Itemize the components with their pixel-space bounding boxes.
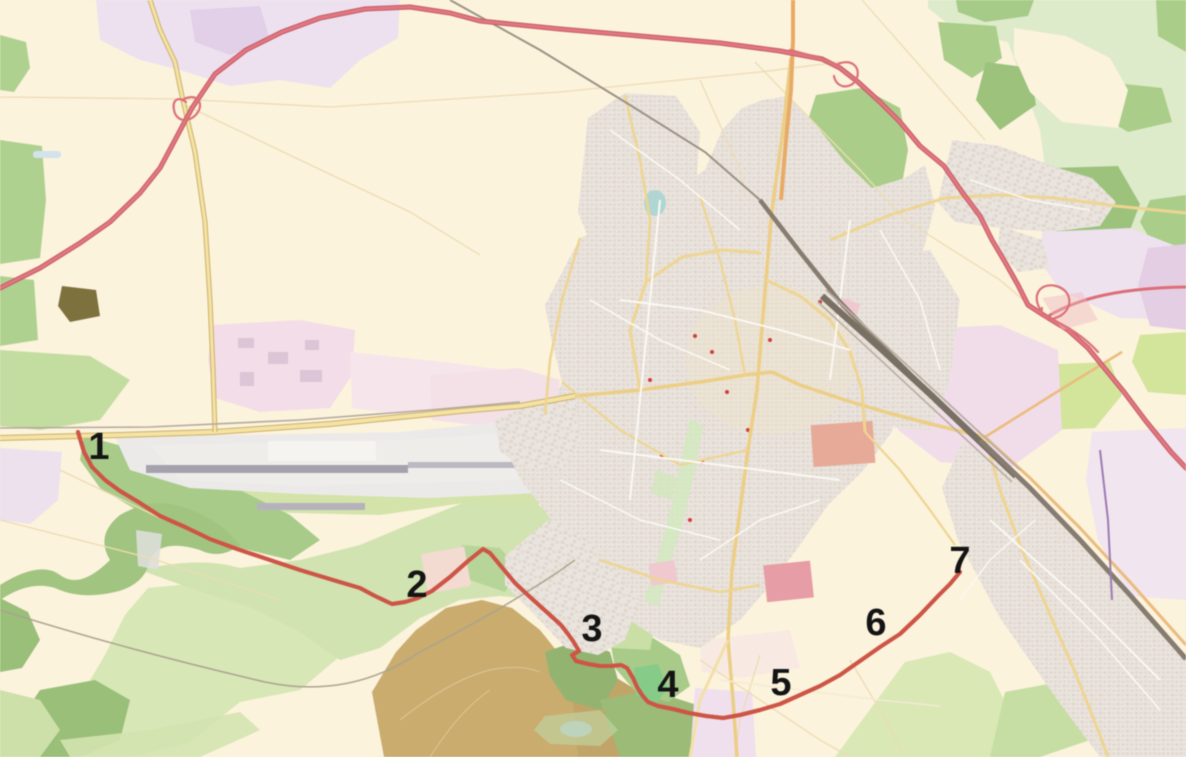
svg-text:3: 3 (581, 608, 602, 650)
svg-text:6: 6 (865, 602, 886, 644)
svg-text:5: 5 (770, 662, 791, 704)
svg-text:7: 7 (949, 540, 970, 582)
svg-text:2: 2 (406, 564, 427, 606)
svg-text:1: 1 (88, 426, 109, 468)
svg-text:4: 4 (657, 664, 678, 706)
